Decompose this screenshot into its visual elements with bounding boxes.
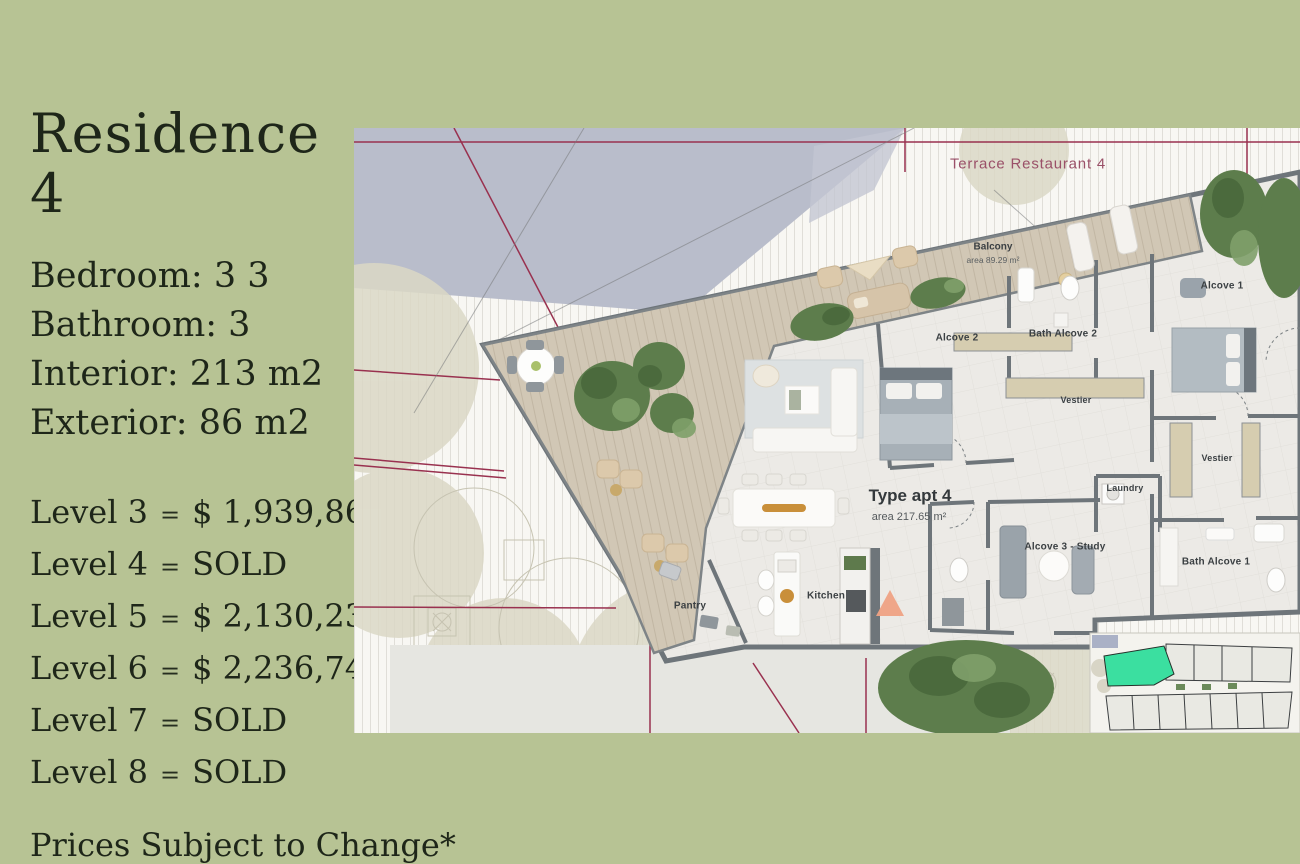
floor-plan-drawing — [354, 128, 1300, 733]
equals-sign: = — [160, 647, 180, 696]
level-row: Level 6 = $ 2,236,747 — [30, 644, 360, 696]
room-label-vestier-center: Vestier — [1061, 395, 1092, 405]
spec-bedroom: Bedroom: 3 3 — [30, 252, 360, 301]
price-disclaimer: Prices Subject to Change* — [30, 826, 360, 864]
level-row: Level 5 = $ 2,130,235 — [30, 592, 360, 644]
alcove2-bed — [880, 368, 952, 460]
level-price: SOLD — [192, 748, 287, 797]
equals-sign: = — [160, 595, 180, 644]
level-price: SOLD — [192, 540, 287, 589]
living-room-furniture — [745, 360, 863, 452]
level-label: Level 7 — [30, 696, 148, 745]
level-price-list: Level 3 = $ 1,939,860 Level 4 = SOLD Lev… — [30, 488, 360, 800]
room-label-bath-alcove2: Bath Alcove 2 — [1029, 329, 1097, 340]
equals-sign: = — [160, 491, 180, 540]
room-label-alcove3-study: Alcove 3 - Study — [1025, 542, 1106, 553]
level-label: Level 4 — [30, 540, 148, 589]
page-title: Residence 4 — [30, 104, 360, 224]
level-row: Level 8 = SOLD — [30, 748, 360, 800]
level-label: Level 5 — [30, 592, 148, 641]
equals-sign: = — [160, 543, 180, 592]
room-label-laundry: Laundry — [1107, 483, 1144, 493]
equals-sign: = — [160, 699, 180, 748]
room-label-bath-alcove1: Bath Alcove 1 — [1182, 557, 1250, 568]
spec-bathroom: Bathroom: 3 — [30, 301, 360, 350]
spec-exterior: Exterior: 86 m2 — [30, 399, 360, 448]
terrace-restaurant-label: Terrace Restaurant 4 — [950, 156, 1106, 173]
equals-sign: = — [160, 751, 180, 800]
room-label-vestier-right: Vestier — [1202, 453, 1233, 463]
level-label: Level 3 — [30, 488, 148, 537]
room-label-kitchen: Kitchen — [807, 591, 845, 602]
spec-interior: Interior: 213 m2 — [30, 350, 360, 399]
room-label-alcove2: Alcove 2 — [936, 333, 979, 344]
keyplan-inset — [1090, 633, 1300, 733]
level-label: Level 6 — [30, 644, 148, 693]
room-label-alcove1: Alcove 1 — [1201, 281, 1244, 292]
apartment-area-label: area 217.65 m² — [872, 511, 947, 523]
floor-plan-image: Terrace Restaurant 4 Balcony area 89.29 … — [354, 128, 1300, 733]
info-panel: Residence 4 Bedroom: 3 3 Bathroom: 3 Int… — [30, 104, 360, 864]
level-row: Level 4 = SOLD — [30, 540, 360, 592]
apartment-type-label: Type apt 4 — [869, 486, 952, 506]
level-row: Level 3 = $ 1,939,860 — [30, 488, 360, 540]
balcony-label: Balcony — [974, 242, 1013, 253]
room-label-pantry: Pantry — [674, 601, 706, 612]
spec-list: Bedroom: 3 3 Bathroom: 3 Interior: 213 m… — [30, 252, 360, 448]
level-row: Level 7 = SOLD — [30, 696, 360, 748]
balcony-area-label: area 89.29 m² — [967, 255, 1020, 265]
level-label: Level 8 — [30, 748, 148, 797]
level-price: SOLD — [192, 696, 287, 745]
